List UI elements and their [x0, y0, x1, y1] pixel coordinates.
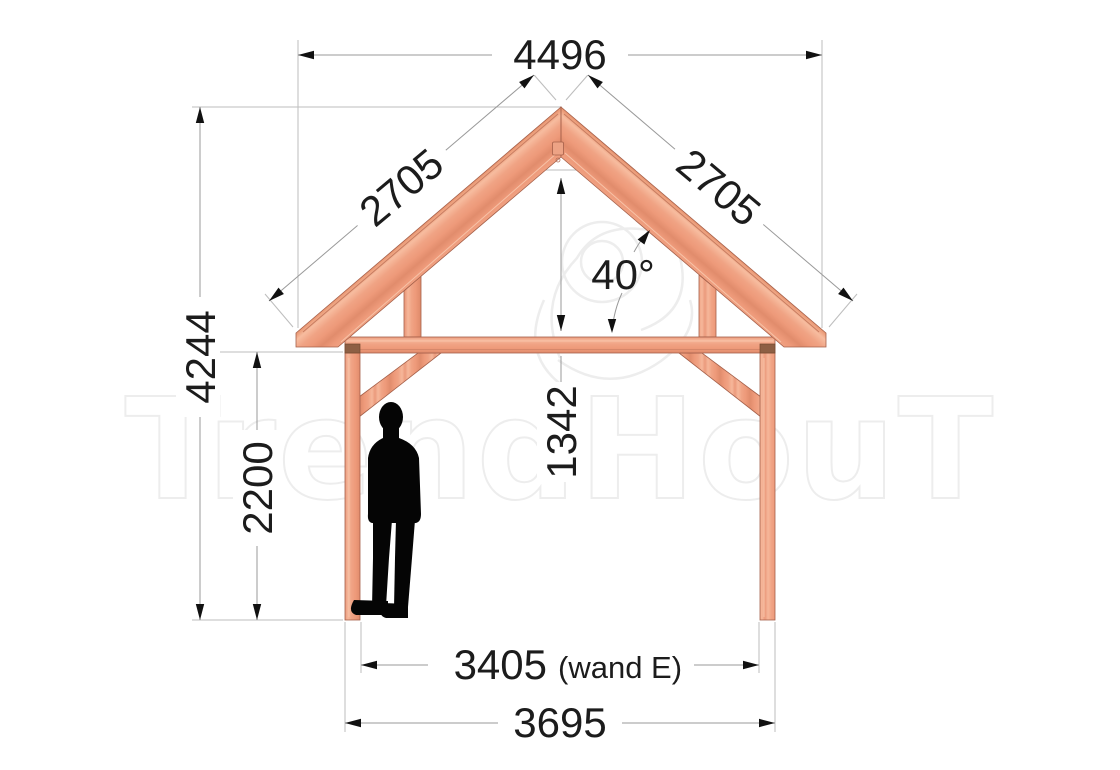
tie-beam [345, 337, 775, 353]
dimension-arrow [196, 604, 204, 620]
dimension-label-top-width: 4496 [513, 31, 606, 78]
figure-torso [368, 438, 421, 523]
dimension-roof-angle: 40° [591, 230, 655, 333]
post-right [760, 353, 775, 620]
dimension-label-inner-width-note: (wand E) [558, 650, 682, 685]
dimension-arrow [608, 319, 616, 333]
extension-line [265, 294, 293, 327]
dimension-arrow [253, 604, 261, 620]
dimension-arrow [557, 178, 565, 194]
dimension-arrow [557, 315, 565, 331]
dimension-inner-width: 3405 (wand E) [361, 641, 759, 688]
joint-block-left [345, 344, 360, 353]
dimension-label-inner-width: 3405 [454, 641, 547, 688]
post-left [345, 353, 360, 620]
dimension-label-truss-rise: 1342 [538, 385, 585, 478]
dimension-arrow [253, 352, 261, 368]
dimension-arrow [806, 51, 822, 59]
dimension-total-height: 4244 [176, 107, 224, 620]
elevation-drawing: TrendHouT [0, 0, 1120, 770]
dimension-top-width: 4496 [298, 31, 822, 78]
dimension-arrow [196, 107, 204, 123]
dimension-arrow [345, 719, 361, 727]
extension-line [829, 294, 857, 327]
figure-right-leg [394, 520, 415, 608]
dimension-label-roof-angle: 40° [591, 251, 655, 298]
figure-left-leg [372, 520, 392, 608]
dimension-label-outer-width: 3695 [513, 699, 606, 746]
joint-block-right [760, 344, 775, 353]
dimension-truss-rise: 1342 [537, 178, 585, 482]
dimension-arrow [361, 661, 377, 669]
figure-right-foot [381, 603, 408, 618]
elevation-drawing-canvas: TrendHouT [0, 0, 1120, 770]
dimension-arrow [298, 51, 314, 59]
ridge-peg [553, 142, 564, 155]
dimension-label-total-height: 4244 [177, 310, 224, 403]
figure-head [379, 402, 403, 432]
dimension-arrow [759, 719, 775, 727]
dimension-label-wall-height: 2200 [234, 441, 281, 534]
dimension-outer-width: 3695 [345, 699, 775, 746]
dimension-arrow [743, 661, 759, 669]
